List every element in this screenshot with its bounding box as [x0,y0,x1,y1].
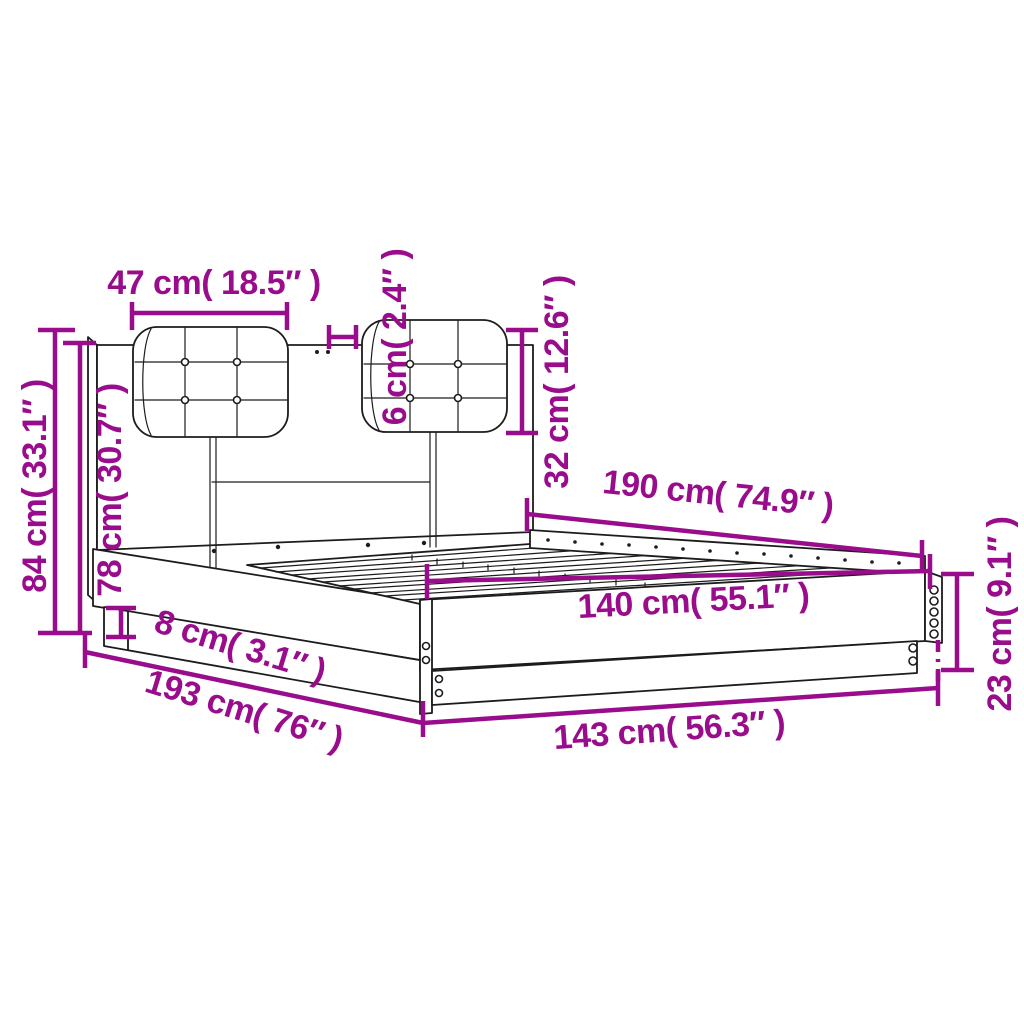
label-23cm: 23 cm( 9.1″ ) [981,517,1019,712]
diagram-stage: 47 cm( 18.5″ ) 6 cm( 2.4″ ) 32 cm( 12.6″… [0,0,1024,1024]
label-6cm: 6 cm( 2.4″ ) [376,249,414,426]
label-84cm: 84 cm( 33.1″ ) [16,379,54,592]
bed-dimension-diagram: 47 cm( 18.5″ ) 6 cm( 2.4″ ) 32 cm( 12.6″… [0,0,1024,1024]
label-47cm: 47 cm( 18.5″ ) [107,264,320,302]
label-78cm: 78 cm( 30.7″ ) [91,383,129,596]
label-190cm: 190 cm( 74.9″ ) [601,463,836,525]
left-cushion [133,327,288,437]
label-32cm: 32 cm( 12.6″ ) [538,275,576,488]
dim-rail-height-23 [938,574,974,682]
dim-cushion-width-47 [132,302,287,330]
